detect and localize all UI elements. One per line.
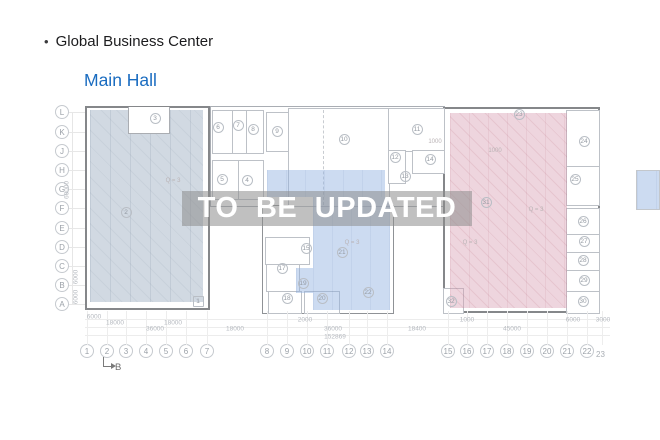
dimension-label: 6000 — [87, 314, 101, 321]
plan-annotation: Q = 3 — [166, 178, 181, 184]
grid-extension-line — [349, 311, 350, 345]
grid-column-label: 23 — [596, 350, 605, 359]
dimension-label: 2000 — [298, 317, 312, 324]
dimension-label: 45000 — [503, 326, 521, 333]
room-number: 4 — [242, 175, 253, 186]
dimension-label: 3000 — [596, 317, 610, 324]
grid-column-label: 14 — [380, 344, 394, 358]
dimension-label: 6000 — [566, 317, 580, 324]
grid-column-label: 5 — [159, 344, 173, 358]
room-number: 22 — [363, 287, 374, 298]
grid-extension-line — [126, 311, 127, 345]
room-number: 21 — [337, 247, 348, 258]
grid-column-label: 22 — [580, 344, 594, 358]
grid-extension-line — [367, 311, 368, 345]
room-number: 6 — [213, 122, 224, 133]
room-number: 13 — [400, 171, 411, 182]
grid-extension-line — [186, 311, 187, 345]
grid-extension-line — [207, 311, 208, 345]
grid-extension-line — [547, 311, 548, 345]
watermark-text: TO BE UPDATED — [198, 192, 457, 225]
grid-column-label: 16 — [460, 344, 474, 358]
grid-column-label: 10 — [300, 344, 314, 358]
room-number: 7 — [233, 120, 244, 131]
grid-extension-line — [69, 151, 85, 152]
room-number: 10 — [339, 134, 350, 145]
grid-extension-line — [287, 311, 288, 345]
grid-row-label: B — [55, 278, 69, 292]
floor-plan: 1234567891011121314151617181920212223LKJ… — [0, 0, 660, 440]
room-number: 15 — [301, 243, 312, 254]
plan-annotation: 1000 — [488, 148, 501, 154]
room-number: 24 — [579, 136, 590, 147]
dimension-label: 18400 — [408, 326, 426, 333]
room-number: 20 — [317, 293, 328, 304]
dimension-label: 36000 — [324, 326, 342, 333]
grid-row-label: F — [55, 201, 69, 215]
grid-column-label: 3 — [119, 344, 133, 358]
grid-extension-line — [107, 311, 108, 345]
grid-column-label: 4 — [139, 344, 153, 358]
grid-column-label: 20 — [540, 344, 554, 358]
page: • Global Business Center Main Hall — [0, 0, 660, 440]
grid-extension-line — [69, 112, 85, 113]
room-number: 2 — [121, 207, 132, 218]
grid-extension-line — [487, 311, 488, 345]
grid-row-label: J — [55, 144, 69, 158]
room-number: 1 — [193, 296, 204, 307]
grid-column-label: 7 — [200, 344, 214, 358]
watermark-banner: TO BE UPDATED — [182, 191, 472, 226]
grid-row-label: K — [55, 125, 69, 139]
grid-extension-line — [448, 311, 449, 345]
dimension-label: 1000 — [460, 317, 474, 324]
grid-extension-line — [69, 189, 85, 190]
room-number: 30 — [578, 296, 589, 307]
grid-extension-line — [587, 311, 588, 345]
plan-annotation: 6000 — [73, 270, 80, 284]
grid-extension-line — [69, 170, 85, 171]
grid-extension-line — [69, 247, 85, 248]
grid-row-label: C — [55, 259, 69, 273]
grid-column-label: 6 — [179, 344, 193, 358]
room-number: 14 — [425, 154, 436, 165]
grid-extension-line — [69, 285, 85, 286]
grid-row-label: E — [55, 221, 69, 235]
grid-column-label: 17 — [480, 344, 494, 358]
grid-extension-line — [387, 311, 388, 345]
grid-row-label: H — [55, 163, 69, 177]
grid-column-label: 21 — [560, 344, 574, 358]
plan-annotation: 60000 — [64, 181, 71, 199]
grid-extension-line — [69, 266, 85, 267]
section-marker-label: B — [115, 362, 121, 373]
grid-column-label: 15 — [441, 344, 455, 358]
room-number: 11 — [412, 124, 423, 135]
grid-extension-line — [69, 228, 85, 229]
plan-annotation: Q = 3 — [345, 240, 360, 246]
grid-column-label: 18 — [500, 344, 514, 358]
room-number: 25 — [570, 174, 581, 185]
dimension-label: 18000 — [106, 320, 124, 327]
grid-column-label: 12 — [342, 344, 356, 358]
grid-row-label: L — [55, 105, 69, 119]
room-number: 23 — [514, 109, 525, 120]
room-number: 32 — [446, 296, 457, 307]
room-number: 8 — [248, 124, 259, 135]
room-number: 27 — [579, 236, 590, 247]
grid-row-label: D — [55, 240, 69, 254]
room-number: 19 — [298, 278, 309, 289]
plan-annotation: Q = 3 — [463, 240, 478, 246]
grid-extension-line — [69, 208, 85, 209]
grid-extension-line — [267, 311, 268, 345]
grid-extension-line — [527, 311, 528, 345]
room-number: 5 — [217, 174, 228, 185]
room-number: 12 — [390, 152, 401, 163]
grid-column-label: 1 — [80, 344, 94, 358]
room-number: 29 — [579, 275, 590, 286]
plan-annotation: 1000 — [428, 139, 441, 145]
grid-extension-line — [166, 311, 167, 345]
grid-column-label: 13 — [360, 344, 374, 358]
dimension-label: 152869 — [324, 334, 346, 341]
room-number: 31 — [481, 197, 492, 208]
grid-column-label: 9 — [280, 344, 294, 358]
room-number: 28 — [578, 255, 589, 266]
grid-column-label: 8 — [260, 344, 274, 358]
grid-extension-line — [69, 132, 85, 133]
grid-column-label: 11 — [320, 344, 334, 358]
room-number: 17 — [277, 263, 288, 274]
grid-column-label: 2 — [100, 344, 114, 358]
room-number: 26 — [578, 216, 589, 227]
plan-annotation: Q = 3 — [529, 207, 544, 213]
room-number: 18 — [282, 293, 293, 304]
dimension-label: 18000 — [164, 320, 182, 327]
grid-row-label: A — [55, 297, 69, 311]
dimension-label: 36000 — [146, 326, 164, 333]
dimension-label: 18000 — [226, 326, 244, 333]
room-number: 9 — [272, 126, 283, 137]
room-number: 3 — [150, 113, 161, 124]
grid-column-label: 19 — [520, 344, 534, 358]
plan-annotation: 6000 — [73, 290, 80, 304]
